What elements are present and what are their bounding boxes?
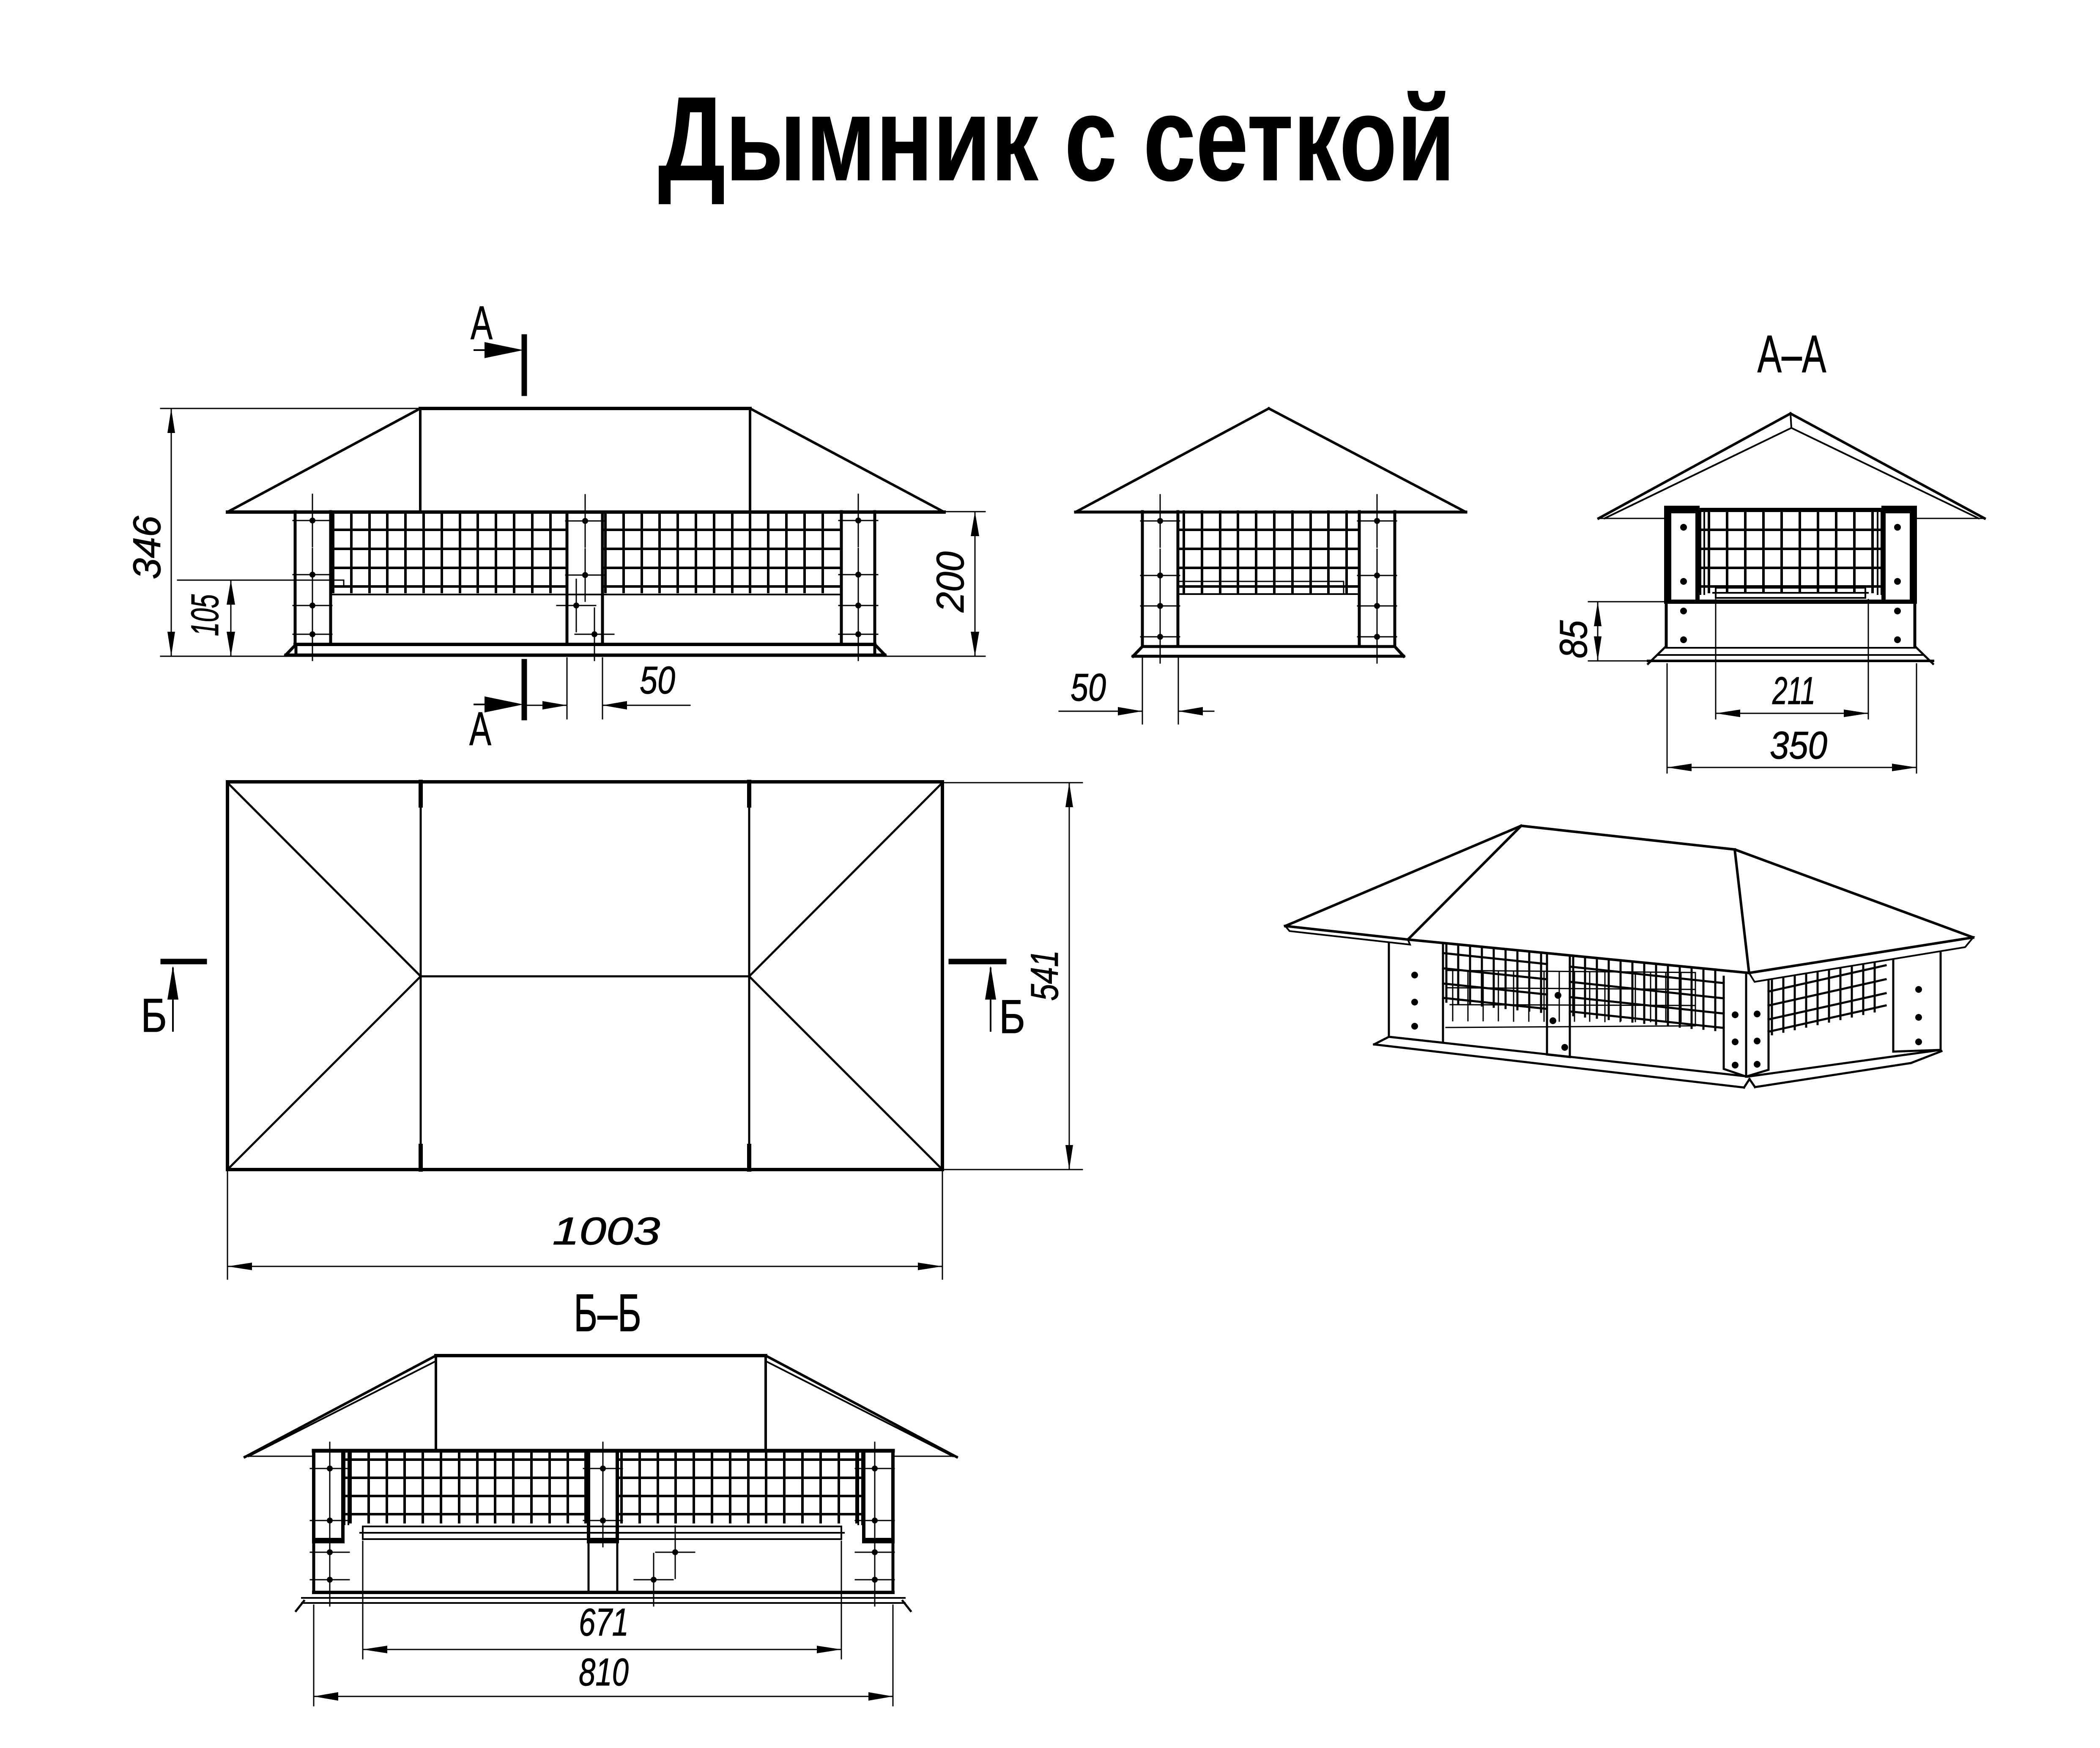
svg-text:671: 671 (579, 1601, 629, 1644)
svg-text:Дымник с сеткой: Дымник с сеткой (658, 72, 1455, 205)
svg-text:346: 346 (126, 515, 169, 579)
svg-text:1003: 1003 (553, 1210, 660, 1253)
svg-text:211: 211 (1772, 669, 1815, 712)
svg-text:200: 200 (929, 551, 972, 613)
svg-text:810: 810 (579, 1651, 629, 1694)
svg-text:50: 50 (1071, 666, 1106, 709)
svg-text:Б: Б (999, 990, 1025, 1043)
svg-text:Б: Б (141, 989, 167, 1042)
svg-text:85: 85 (1552, 620, 1595, 658)
svg-text:А: А (469, 702, 491, 755)
svg-text:105: 105 (183, 594, 227, 636)
svg-text:Б–Б: Б–Б (574, 1284, 641, 1343)
svg-text:350: 350 (1770, 724, 1827, 767)
svg-text:А–А: А–А (1758, 325, 1826, 384)
svg-text:50: 50 (640, 659, 675, 702)
svg-text:541: 541 (1023, 950, 1066, 1001)
svg-text:А: А (471, 296, 493, 349)
